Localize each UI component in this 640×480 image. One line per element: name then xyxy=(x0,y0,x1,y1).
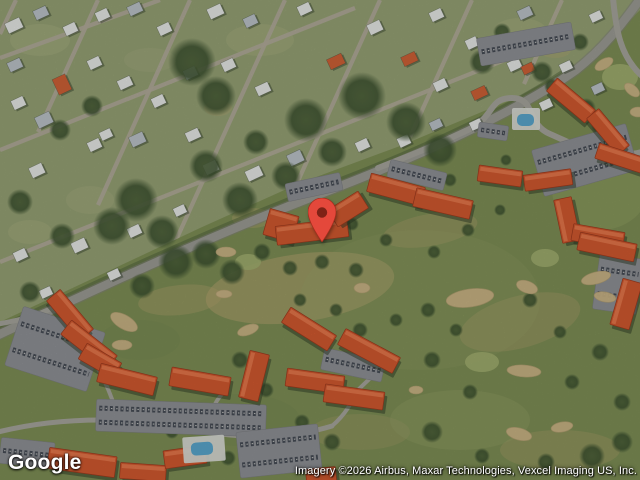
map-canvas[interactable]: Google Imagery ©2026 Airbus, Maxar Techn… xyxy=(0,0,640,480)
map-marker[interactable] xyxy=(308,198,336,242)
pin-icon xyxy=(308,198,336,242)
attribution-text: Imagery ©2026 Airbus, Maxar Technologies… xyxy=(295,465,637,477)
pin-dot xyxy=(317,207,327,217)
google-logo[interactable]: Google xyxy=(8,451,82,475)
